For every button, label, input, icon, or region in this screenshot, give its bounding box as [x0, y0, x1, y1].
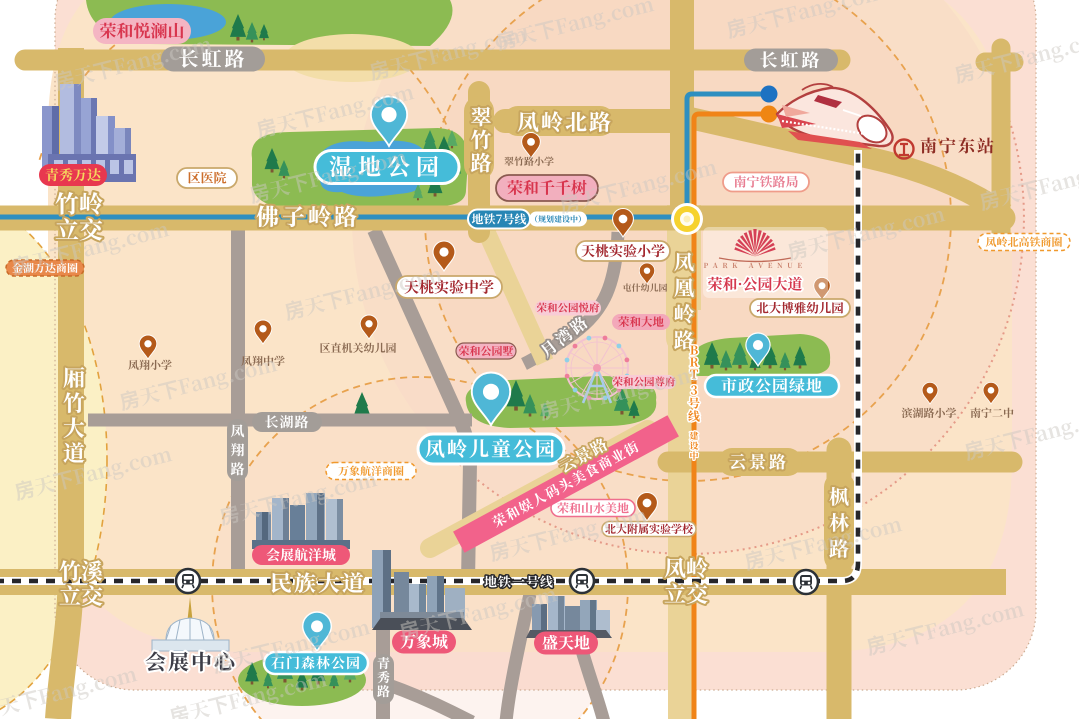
svg-text:市政公园绿地: 市政公园绿地 — [721, 374, 823, 397]
svg-text:云景路: 云景路 — [729, 448, 789, 473]
svg-text:南宁东站: 南宁东站 — [920, 132, 996, 157]
svg-text:中: 中 — [689, 449, 698, 462]
svg-text:南宁铁路局: 南宁铁路局 — [733, 172, 798, 191]
svg-text:天桃实验小学: 天桃实验小学 — [581, 241, 665, 261]
svg-text:地铁7号线: 地铁7号线 — [471, 210, 526, 227]
svg-text:荣和大地: 荣和大地 — [618, 314, 664, 330]
svg-text:凤岭北路: 凤岭北路 — [517, 106, 613, 137]
svg-text:会展航洋城: 会展航洋城 — [266, 545, 336, 565]
svg-text:佛子岭路: 佛子岭路 — [256, 199, 360, 232]
svg-text:线: 线 — [688, 407, 700, 424]
svg-text:荣和公园悦府: 荣和公园悦府 — [537, 301, 600, 316]
svg-text:长虹路: 长虹路 — [760, 46, 823, 72]
svg-text:路: 路 — [231, 459, 245, 479]
svg-text:路: 路 — [377, 681, 390, 700]
svg-text:荣和·公园大道: 荣和·公园大道 — [707, 273, 802, 294]
svg-text:青秀万达: 青秀万达 — [45, 165, 102, 185]
svg-text:南宁二中: 南宁二中 — [970, 405, 1014, 421]
svg-text:滨湖路小学: 滨湖路小学 — [902, 405, 957, 421]
svg-text:荣和公园墅: 荣和公园墅 — [459, 343, 514, 359]
svg-text:立交: 立交 — [664, 578, 709, 609]
svg-text:枫: 枫 — [829, 481, 849, 510]
svg-text:凤翔小学: 凤翔小学 — [128, 357, 172, 373]
svg-text:立交: 立交 — [59, 580, 104, 611]
svg-text:凤: 凤 — [231, 421, 245, 441]
svg-text:凤岭北高铁商圈: 凤岭北高铁商圈 — [986, 234, 1063, 250]
svg-text:（规划建设中）: （规划建设中） — [530, 214, 586, 225]
svg-text:翔: 翔 — [231, 440, 245, 460]
svg-text:民族大道: 民族大道 — [270, 567, 366, 598]
svg-text:翠竹路小学: 翠竹路小学 — [504, 153, 554, 168]
svg-text:长湖路: 长湖路 — [265, 412, 310, 432]
svg-text:北大博雅幼儿园: 北大博雅幼儿园 — [756, 298, 844, 316]
svg-text:盛天地: 盛天地 — [542, 631, 590, 654]
svg-text:屯什幼儿园: 屯什幼儿园 — [622, 281, 667, 294]
svg-text:区医院: 区医院 — [187, 168, 226, 187]
svg-text:凤岭儿童公园: 凤岭儿童公园 — [425, 433, 557, 462]
svg-text:路: 路 — [471, 148, 492, 178]
svg-text:区直机关幼儿园: 区直机关幼儿园 — [320, 340, 397, 356]
